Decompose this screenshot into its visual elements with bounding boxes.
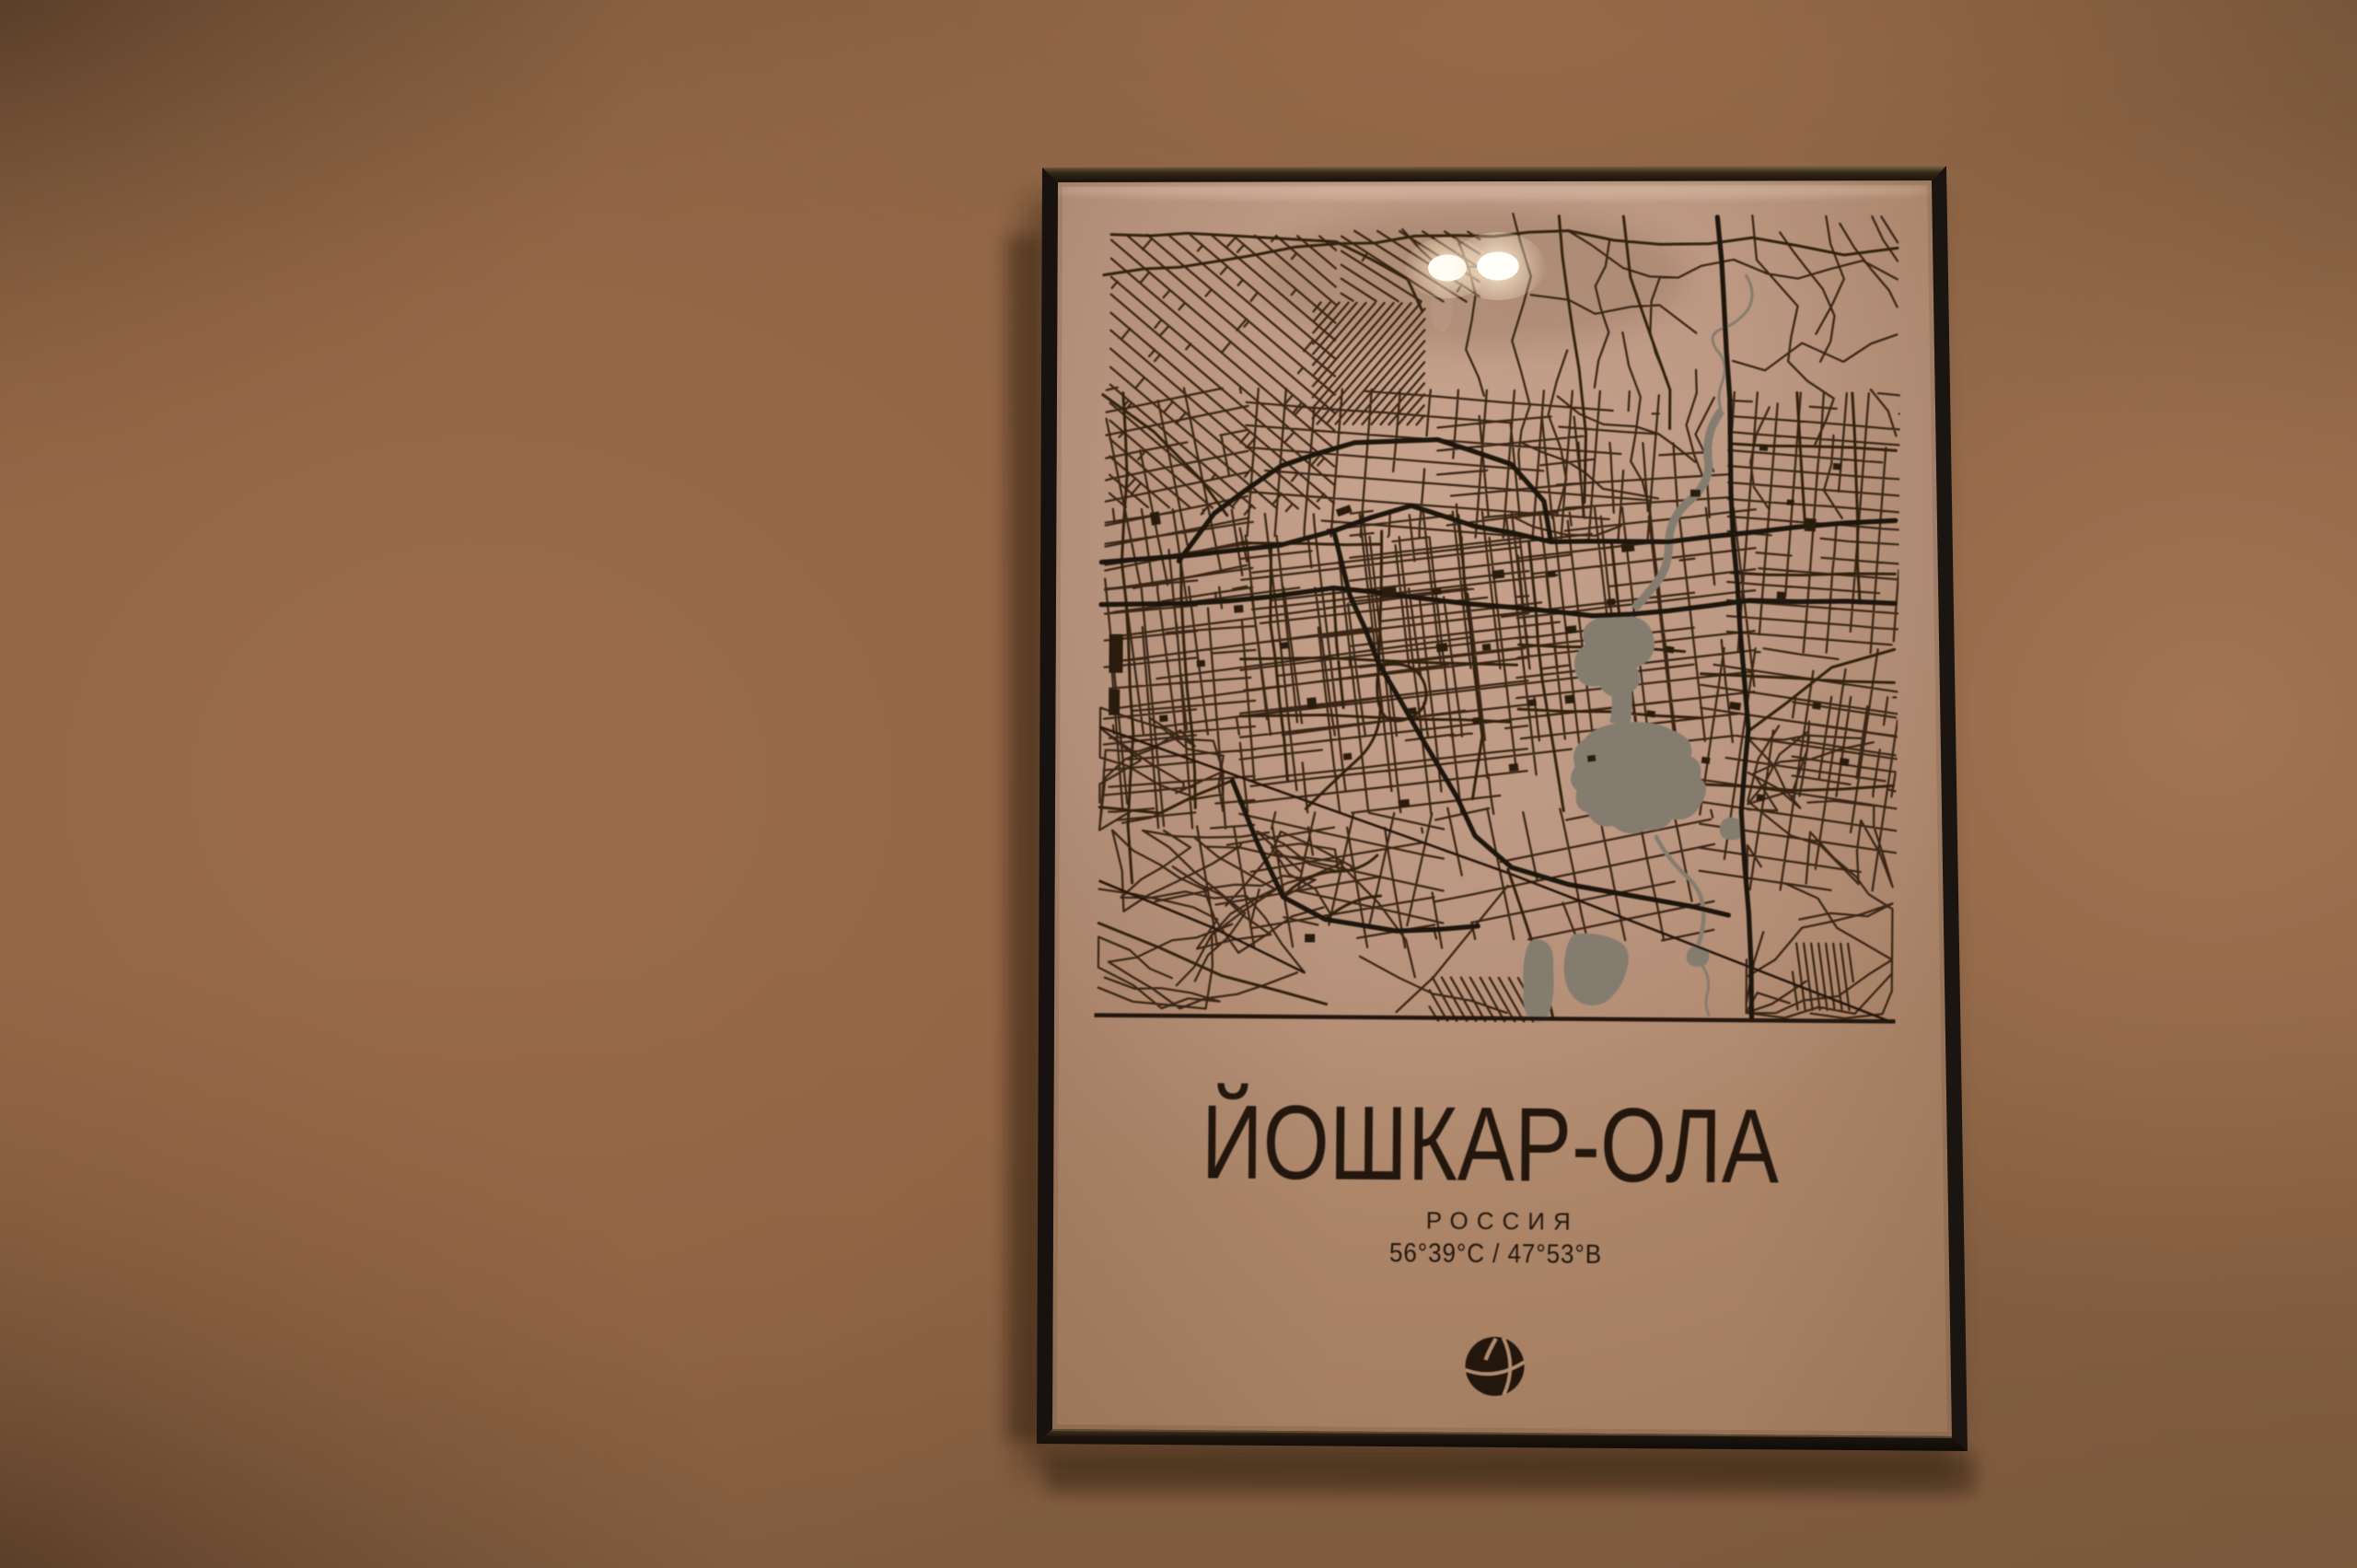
svg-text:56°39°С / 47°53°В: 56°39°С / 47°53°В — [1389, 1237, 1602, 1269]
svg-text:ЙОШКАР-ОЛА: ЙОШКАР-ОЛА — [1201, 1082, 1780, 1205]
svg-text:РОССИЯ: РОССИЯ — [1426, 1206, 1579, 1235]
